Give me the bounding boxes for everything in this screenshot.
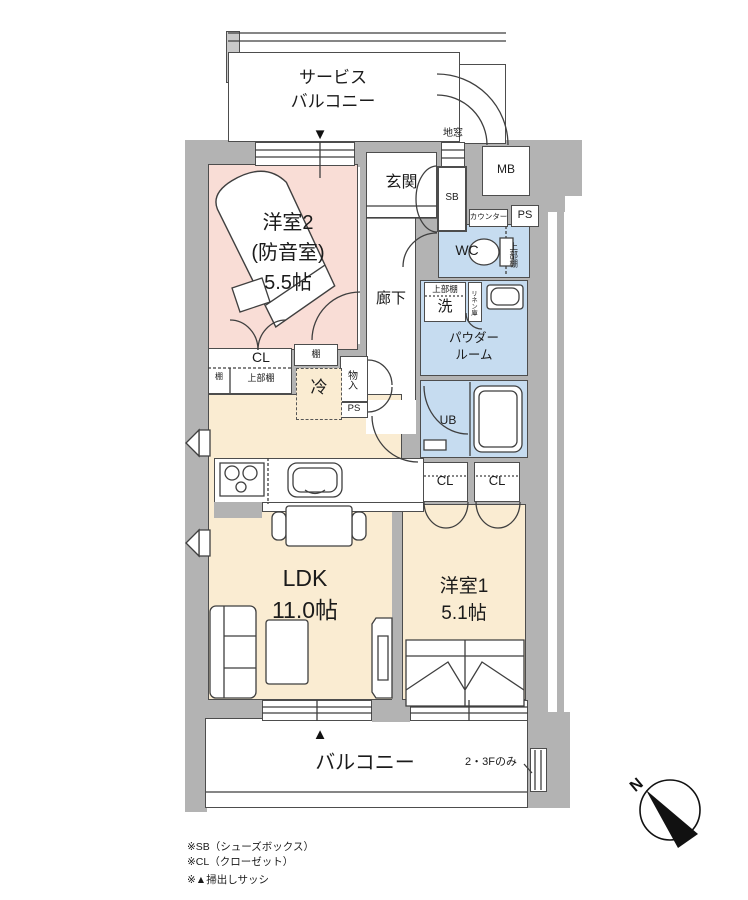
western2-label: 洋室2(防音室)5.5帖: [218, 208, 358, 298]
balcony-label: バルコニー: [265, 752, 465, 775]
meter-box-label: MB: [482, 163, 530, 177]
washer-label: 洗: [424, 298, 466, 315]
wall-balcony-left-seg: [205, 700, 262, 720]
western1-balcony-window: [410, 700, 528, 721]
wall-outer-strip-right: [557, 212, 564, 797]
powder-label: パウダールーム: [422, 330, 526, 364]
floor-window-label: 地窓: [431, 128, 475, 140]
wall-balcony-left: [185, 700, 207, 812]
shelf-small-label: 棚: [208, 372, 230, 381]
ldk-balcony-window: [262, 700, 372, 721]
closet2-label: CL: [474, 474, 520, 489]
linen-label: リネン庫: [469, 284, 476, 322]
north-label: N: [627, 775, 647, 795]
corridor-mouth: [366, 400, 416, 434]
kitchen-counter-front: [262, 502, 424, 512]
wc-label: WC: [440, 242, 494, 258]
storage-label: 物入: [345, 362, 357, 398]
closet-w2-label: CL: [230, 349, 292, 365]
western1-label: 洋室15.1帖: [402, 573, 526, 627]
upper-shelf-washer-label: 上部棚: [424, 285, 466, 295]
shoe-box-label: SB: [437, 192, 467, 204]
note-cl: ※CL（クローゼット）: [187, 855, 407, 870]
escape-hatch: [530, 748, 547, 792]
note-sash: ※▲掃出しサッシ: [187, 873, 407, 888]
kitchen-counter: [214, 458, 424, 504]
kitchen-base: [214, 502, 262, 518]
north-compass: N: [627, 775, 700, 848]
pipe-space-top-label: PS: [511, 209, 539, 222]
wall-notch: [565, 196, 582, 212]
floor-window: [441, 142, 465, 167]
floor-plan: N サービスバルコニー ▼ 玄関 SB 地窓 MB カウンター PS 洋室2(防…: [0, 0, 748, 900]
ldk-label: LDK11.0帖: [250, 562, 360, 626]
window-marker-up: ▲: [302, 726, 338, 743]
counter-label: カウンター: [469, 213, 508, 222]
wall-left: [185, 140, 208, 718]
wall-window-pier: [372, 700, 410, 722]
upper-shelf-w2-label: 上部棚: [230, 373, 292, 383]
fridge-label: 冷: [296, 378, 342, 398]
note-sb: ※SB（シューズボックス）: [187, 840, 407, 855]
upper-shelf-wc-label: 上部棚: [508, 234, 518, 276]
floors-note-label: 2・3Fのみ: [458, 756, 524, 769]
top-wall-lines: [228, 33, 506, 41]
pipe-space-mid-label: PS: [340, 404, 368, 415]
bath-label: UB: [428, 414, 468, 428]
room-ldk: [208, 394, 402, 700]
window-marker-down: ▼: [302, 126, 338, 143]
service-balcony-label: サービスバルコニー: [233, 66, 433, 114]
corridor-label: 廊下: [364, 290, 418, 307]
genkan-label: 玄関: [366, 174, 437, 192]
closet1-label: CL: [422, 474, 468, 489]
shelf-mid-label: 棚: [294, 349, 338, 359]
legend-notes: ※SB（シューズボックス） ※CL（クローゼット） ※▲掃出しサッシ: [187, 840, 407, 888]
service-balcony-window: [255, 142, 355, 166]
